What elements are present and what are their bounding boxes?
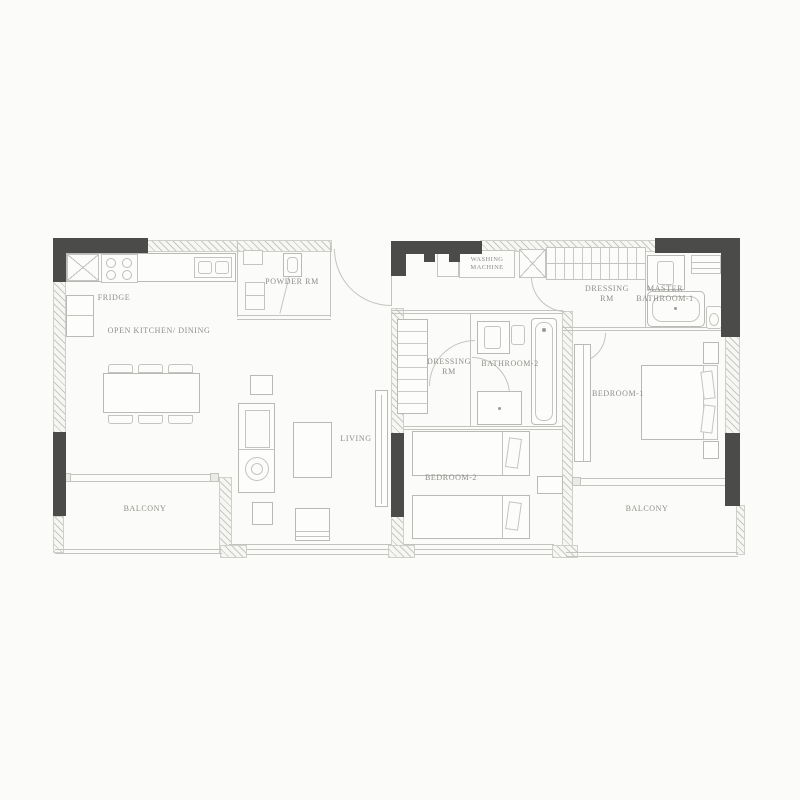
floor-plan: WASHING MACHINE: [0, 0, 800, 800]
wall-segment-hatched: [562, 311, 573, 547]
bed-head-line: [502, 432, 503, 475]
wardrobe: [574, 344, 591, 462]
washing-machine-unit: [519, 249, 546, 278]
wall-segment-dark: [725, 433, 740, 506]
sofa: [295, 508, 330, 541]
nightstand: [703, 441, 719, 459]
room-label-fridge: FRIDGE: [94, 293, 134, 303]
room-label-living: LIVING: [336, 434, 376, 444]
wall-line: [237, 243, 238, 317]
wardrobe-line: [583, 345, 584, 461]
wall-segment-hatched: [146, 240, 332, 252]
wall-segment-hatched: [53, 516, 64, 553]
room-label-bathroom-2: BATHROOM-2: [477, 359, 543, 369]
room-label-balcony-left: BALCONY: [116, 504, 174, 514]
sink-basin: [484, 326, 501, 349]
window: [246, 549, 389, 555]
window: [414, 549, 553, 555]
double-bed: [641, 365, 705, 440]
unit-shelf: [245, 410, 270, 448]
nightstand: [537, 476, 563, 494]
wall-segment-hatched: [736, 505, 745, 555]
sofa-seat-line: [296, 536, 329, 537]
closet-rod: [546, 263, 646, 264]
bathroom-shelf: [691, 255, 721, 274]
dining-table: [103, 373, 200, 413]
shelf-line: [692, 262, 720, 263]
wall-line: [237, 315, 331, 320]
sofa-seat-line: [296, 531, 329, 532]
nightstand: [703, 342, 719, 364]
shower-head-icon: [542, 328, 546, 332]
dressing-door-arc: [531, 277, 566, 312]
fridge-divider: [66, 315, 94, 316]
room-label-bedroom-2: BEDROOM-2: [418, 473, 484, 483]
balcony-edge: [55, 549, 222, 554]
tv-panel: [375, 390, 388, 507]
side-table: [250, 375, 273, 395]
sink-basin: [657, 261, 674, 285]
wall-segment-dark: [721, 238, 740, 337]
railing-post: [572, 477, 581, 486]
balcony-railing: [572, 478, 734, 486]
wall-segment-dark: [449, 254, 460, 262]
room-label-dressing-rm-master: DRESSING RM: [581, 284, 633, 305]
drain-icon: [674, 307, 677, 310]
media-unit: [238, 403, 275, 493]
tub-inner: [535, 322, 553, 421]
wall-segment-dark: [391, 433, 404, 517]
toilet: [511, 325, 525, 345]
dining-chair: [168, 415, 193, 424]
bed-head-line: [502, 496, 503, 538]
panel-line: [381, 395, 382, 504]
wall-segment-hatched: [220, 545, 247, 558]
wall-line: [562, 327, 726, 331]
room-label-open-kitchen-dining: OPEN KITCHEN/ DINING: [100, 326, 218, 336]
toilet: [706, 306, 722, 329]
wall-segment-dark: [424, 254, 435, 262]
coffee-table: [293, 422, 332, 478]
washing-machine-box: WASHING MACHINE: [459, 250, 515, 278]
twin-bed: [412, 431, 530, 476]
room-label-master-bathroom-1: MASTER BATHROOM-1: [633, 284, 697, 305]
wall-segment-dark: [53, 432, 66, 516]
dining-chair: [168, 364, 193, 373]
wall-segment-hatched: [53, 280, 66, 433]
wall-line: [229, 544, 391, 545]
wall-segment-hatched: [388, 545, 415, 558]
armchair-inner: [251, 463, 263, 475]
toilet-bowl: [709, 313, 719, 326]
wall-line: [404, 544, 554, 545]
burner-icon: [106, 258, 116, 268]
sink-basin: [198, 261, 212, 274]
twin-bed: [412, 495, 530, 539]
sink-basin: [215, 261, 229, 274]
pillow: [505, 501, 522, 531]
wall-segment-hatched: [725, 336, 740, 434]
dining-chair: [138, 415, 163, 424]
shelf-line: [692, 268, 720, 269]
cooktop: [101, 254, 138, 283]
wall-segment-dark: [391, 241, 406, 276]
dining-chair: [108, 415, 133, 424]
balcony-edge: [566, 552, 738, 557]
pillow: [505, 437, 522, 469]
unit-divider: [239, 449, 274, 450]
room-label-dressing-rm-2: DRESSING RM: [424, 357, 474, 378]
wall-segment-dark: [53, 238, 148, 253]
room-label-bedroom-1: BEDROOM-1: [589, 389, 647, 399]
bathroom-cabinet: [477, 391, 522, 425]
powder-sink: [283, 253, 302, 277]
burner-icon: [106, 270, 116, 280]
dining-chair: [108, 364, 133, 373]
shower-tub: [531, 318, 557, 425]
wall-line: [391, 310, 563, 314]
toilet-divider: [245, 295, 265, 296]
balcony-railing: [62, 474, 219, 482]
wall-line: [404, 426, 563, 430]
kitchen-corner-unit: [67, 254, 99, 281]
wall-line: [330, 243, 331, 317]
wall-segment-dark: [53, 238, 66, 282]
railing-post: [210, 473, 219, 482]
fridge: [66, 295, 94, 337]
burner-icon: [122, 270, 132, 280]
drain-icon: [498, 407, 501, 410]
dining-chair: [138, 364, 163, 373]
kitchen-sink: [194, 257, 232, 278]
sink-basin: [287, 257, 298, 273]
side-table: [252, 502, 273, 525]
room-label-balcony-right: BALCONY: [618, 504, 676, 514]
entry-door-arc: [334, 249, 391, 306]
burner-icon: [122, 258, 132, 268]
wall-segment-hatched: [219, 477, 232, 554]
room-label-powder-rm: POWDER RM: [262, 277, 322, 287]
powder-shelf: [243, 250, 263, 265]
bathroom-vanity: [477, 321, 510, 354]
